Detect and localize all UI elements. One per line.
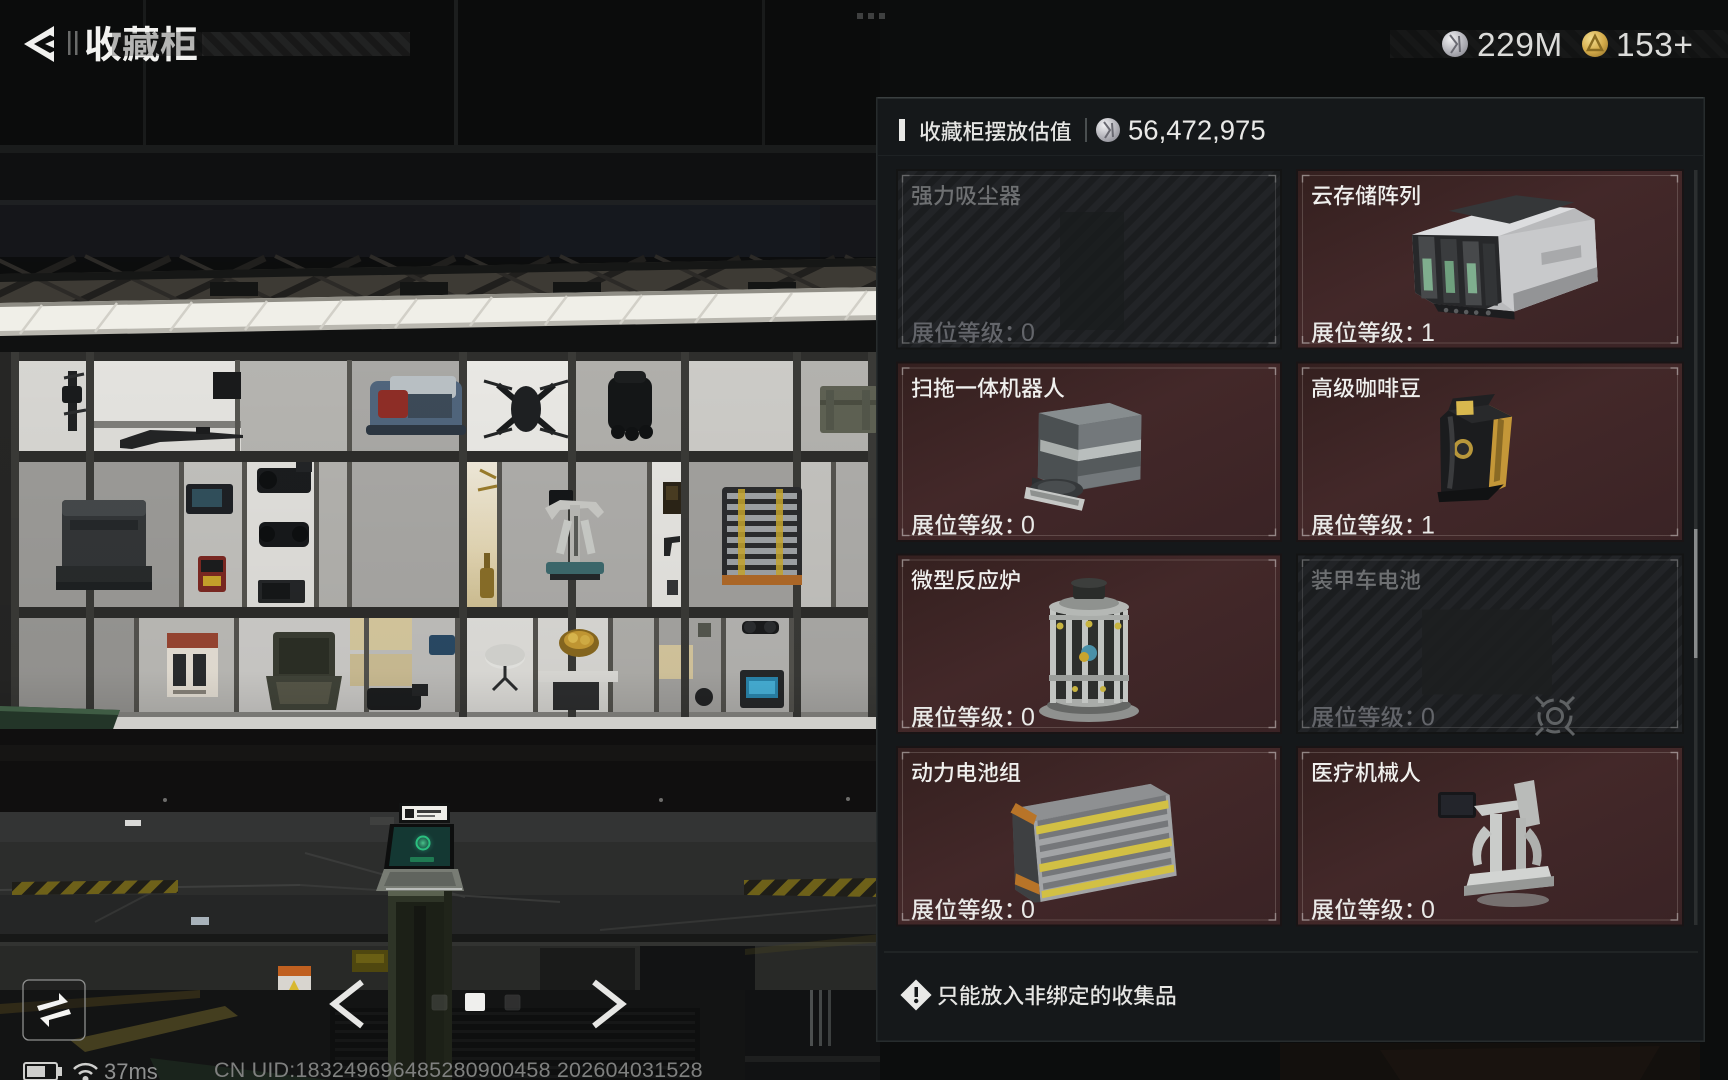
svg-text:229M: 229M — [1477, 27, 1563, 64]
svg-text:0: 0 — [1021, 512, 1035, 540]
svg-text:37ms: 37ms — [104, 1059, 158, 1080]
svg-text:1: 1 — [1421, 319, 1435, 347]
svg-text:0: 0 — [1421, 896, 1435, 924]
svg-text:0: 0 — [1021, 704, 1035, 732]
svg-text:0: 0 — [1421, 704, 1435, 732]
svg-text:56,472,975: 56,472,975 — [1128, 115, 1266, 146]
svg-text:153+: 153+ — [1616, 27, 1693, 64]
svg-text:1: 1 — [1421, 512, 1435, 540]
svg-text:CN UID:183249696485280900458 2: CN UID:183249696485280900458 20260403152… — [214, 1058, 703, 1080]
svg-text:0: 0 — [1021, 896, 1035, 924]
svg-text:0: 0 — [1021, 319, 1035, 347]
